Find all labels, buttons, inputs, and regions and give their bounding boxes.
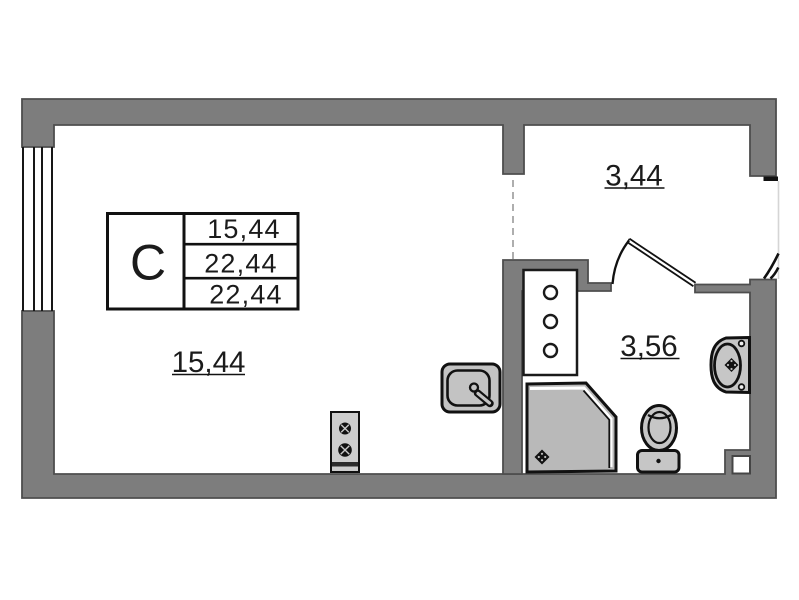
svg-text:15,44: 15,44 [207, 214, 281, 244]
svg-text:С: С [130, 235, 166, 291]
svg-text:22,44: 22,44 [204, 249, 278, 279]
svg-text:22,44: 22,44 [209, 280, 283, 310]
